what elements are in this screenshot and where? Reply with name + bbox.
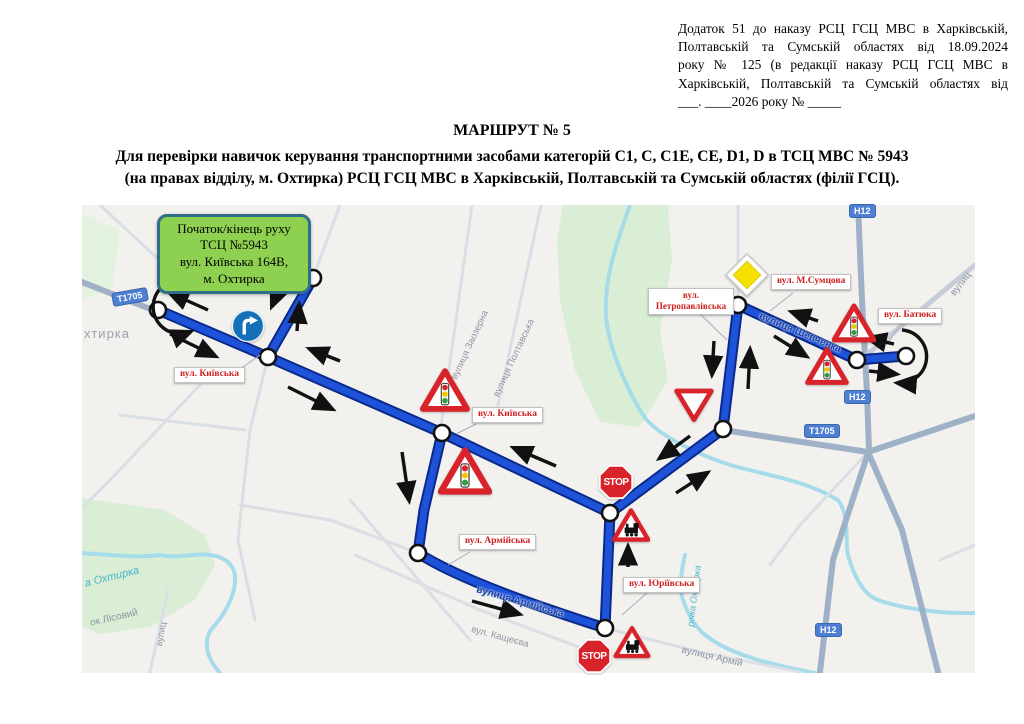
route-number-title: МАРШРУТ № 5 — [40, 122, 984, 140]
route-street-label-armiiska: вул. Армійська — [459, 534, 536, 550]
route-street-label-kyivska-mid: вул. Київська — [472, 407, 543, 423]
road-shield-t1705-east: Т1705 — [804, 424, 840, 438]
stop-sign: STOP — [598, 464, 634, 500]
route-street-label-petropavlivska: вул. Петропавлівська — [648, 288, 734, 315]
document-page: Додаток 51 до наказу РСЦ ГСЦ МВС в Харкі… — [0, 0, 1024, 724]
traffic-lights-warning-sign-icon — [832, 302, 876, 344]
route-description-line: (на правах відділу, м. Охтирка) РСЦ ГСЦ … — [40, 168, 984, 190]
railway-crossing-sign-icon — [612, 507, 650, 543]
route-street-label-sumtsova: вул. М.Сумцова — [771, 274, 851, 290]
start-box-line: м. Охтирка — [203, 271, 264, 288]
city-label-okhtyrka: хтирка — [84, 326, 130, 341]
annex-line: Додаток 51 до наказу РСЦ ГСЦ МВС в Харкі… — [678, 20, 1008, 38]
road-shield-h12-bottom: Н12 — [815, 623, 842, 637]
stop-sign: STOP — [576, 638, 612, 674]
route-description-line: Для перевірки навичок керування транспор… — [40, 146, 984, 168]
route-street-label-kyivska-west: вул. Київська — [174, 367, 245, 383]
traffic-lights-warning-sign-icon — [438, 446, 492, 496]
give-way-sign-icon — [674, 382, 714, 428]
traffic-lights-warning-sign-icon — [805, 346, 849, 386]
start-box-line: Початок/кінець руху — [177, 221, 291, 238]
document-title: МАРШРУТ № 5 Для перевірки навичок керува… — [40, 122, 984, 190]
road-shield-h12-mid: Н12 — [844, 390, 871, 404]
start-box-line: ТСЦ №5943 — [200, 237, 268, 254]
railway-crossing-sign-icon — [613, 625, 651, 659]
annex-line: Полтавській та Сумській областях від 18.… — [678, 38, 1008, 56]
start-end-point-box: Початок/кінець руху ТСЦ №5943 вул. Київс… — [157, 214, 311, 294]
route-street-label-yuriivska: вул. Юріївська — [623, 577, 700, 593]
start-box-line: вул. Київська 164В, — [180, 254, 288, 271]
annex-line: ___. ____2026 року № _____ — [678, 93, 1008, 111]
route-street-label-batiuka: вул. Батюка — [878, 308, 942, 324]
traffic-lights-warning-sign-icon — [420, 367, 470, 413]
mandatory-right-turn-sign-icon — [231, 309, 265, 343]
annex-line: Харківській, Полтавській та Сумській обл… — [678, 75, 1008, 93]
stop-sign-text: STOP — [576, 638, 612, 674]
stop-sign-text: STOP — [598, 464, 634, 500]
label-pointers — [236, 293, 899, 615]
annex-header: Додаток 51 до наказу РСЦ ГСЦ МВС в Харкі… — [678, 20, 1008, 111]
annex-line: року № 125 (в редакції наказу РСЦ ГСЦ МВ… — [678, 56, 1008, 74]
road-shield-h12-top: Н12 — [849, 204, 876, 218]
